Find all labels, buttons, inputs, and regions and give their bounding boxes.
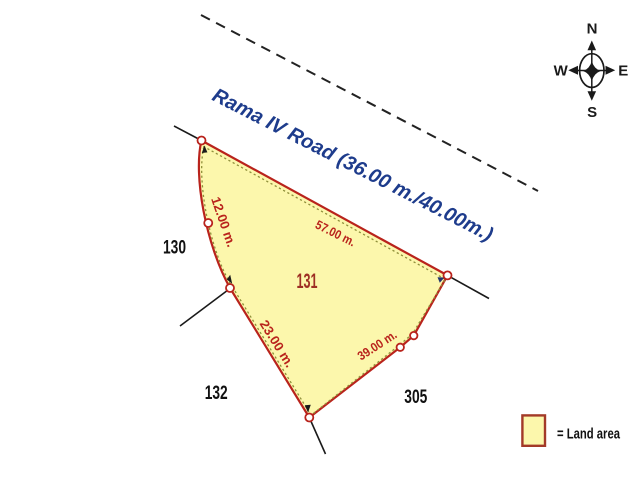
svg-text:N: N — [587, 21, 598, 38]
svg-text:E: E — [618, 62, 628, 79]
svg-text:= Land area: = Land area — [557, 425, 620, 442]
svg-text:305: 305 — [404, 386, 427, 408]
svg-text:132: 132 — [205, 382, 228, 404]
svg-text:130: 130 — [163, 237, 186, 259]
svg-text:131: 131 — [297, 270, 318, 293]
svg-text:S: S — [587, 104, 597, 121]
svg-text:W: W — [554, 63, 569, 80]
